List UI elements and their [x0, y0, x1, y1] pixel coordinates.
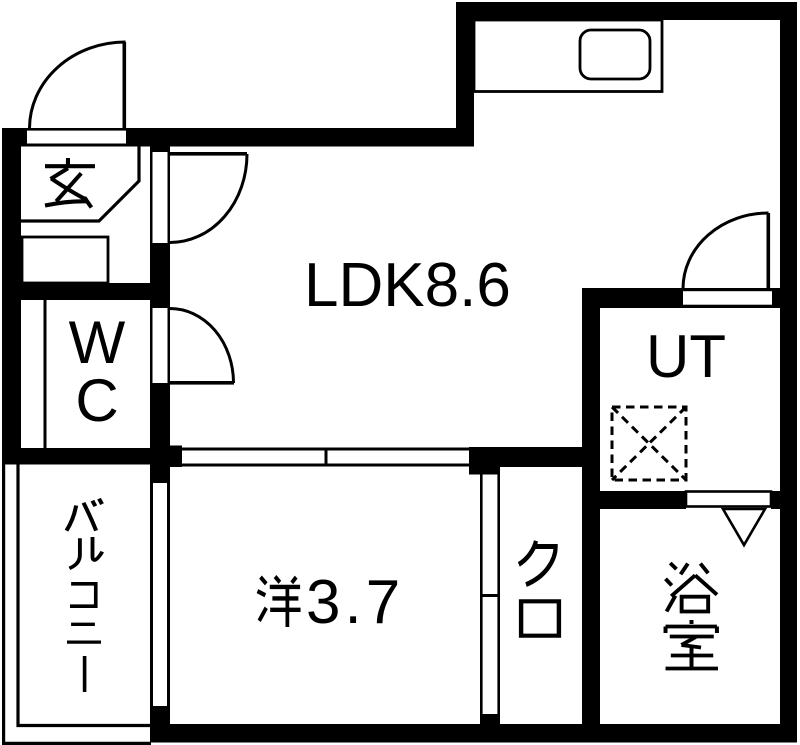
- svg-text:C: C: [75, 367, 118, 434]
- svg-text:3.7: 3.7: [306, 568, 404, 637]
- svg-text:W: W: [69, 309, 126, 376]
- svg-text:LDK8.6: LDK8.6: [304, 251, 511, 320]
- svg-text:UT: UT: [646, 323, 726, 390]
